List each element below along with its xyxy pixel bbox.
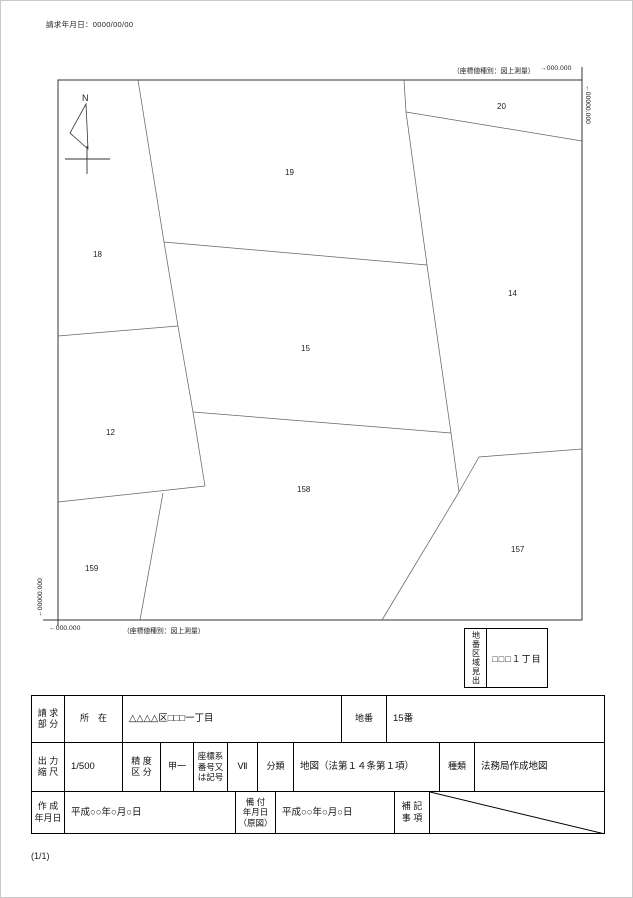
parcel-boundaries: 181920141512158159157: [58, 80, 582, 620]
parcel-boundary-line: [140, 493, 163, 620]
parcel-boundary-line: [459, 449, 582, 492]
lot-number-value: 15番: [386, 696, 604, 742]
classification-label: 分類: [257, 742, 293, 791]
lot-number-label: 地番: [341, 696, 386, 742]
cadastral-map: N 181920141512158159157: [1, 1, 633, 661]
attribute-table: 請 求 部 分 所 在 △△△△区□□□一丁目 地番 15番 出 力 縮 尺 1…: [31, 695, 605, 834]
parcel-number-label: 12: [106, 428, 115, 437]
classification-value: 地図（法第１４条第１項）: [293, 742, 439, 791]
parcel-boundary-line: [58, 326, 178, 336]
parcel-number-label: 18: [93, 250, 102, 259]
precision-class-label: 精 度 区 分: [122, 742, 160, 791]
parcel-boundary-line: [138, 80, 205, 486]
parcel-number-label: 15: [301, 344, 310, 353]
coord-y-right-edge: ←00000.000: [584, 85, 591, 124]
coord-y-left-edge: ←00000.000: [37, 578, 44, 617]
parcel-number-label: 20: [497, 102, 506, 111]
parcel-number-label: 14: [508, 289, 517, 298]
request-part-label: 請 求 部 分: [32, 696, 64, 742]
output-scale-label: 出 力 縮 尺: [32, 742, 64, 791]
north-arrow-icon: [70, 104, 88, 149]
created-date-label: 作 成 年月日: [32, 791, 64, 833]
coord-system-label: 座標系 番号又 は記号: [193, 742, 227, 791]
location-value: △△△△区□□□一丁目: [122, 696, 341, 742]
filed-date-label: 備 付 年月日 （原図）: [235, 791, 275, 833]
kind-value: 法務局作成地図: [474, 742, 604, 791]
coord-x-top-right: →000.000: [540, 65, 571, 72]
filed-date-value: 平成○○年○月○日: [275, 791, 394, 833]
north-label: N: [82, 93, 89, 103]
parcel-number-label: 157: [511, 545, 525, 554]
location-label: 所 在: [64, 696, 122, 742]
remarks-label: 補 記 事 項: [394, 791, 429, 833]
precision-class-value: 甲一: [160, 742, 193, 791]
cadastral-map-certificate-page: 請求年月日：0000/00/00 N 181920141512158159157…: [0, 0, 633, 898]
parcel-boundary-line: [164, 242, 427, 265]
coord-system-value: Ⅶ: [227, 742, 257, 791]
diagonal-strike-line: [430, 792, 604, 834]
parcel-number-label: 159: [85, 564, 99, 573]
parcel-number-label: 158: [297, 485, 311, 494]
remarks-value-empty: [429, 791, 604, 833]
coord-type-note-top: （座標値種別：図上測量）: [453, 65, 535, 75]
coord-x-bottom-left: ←000.000: [49, 625, 80, 632]
parcel-boundary-line: [406, 112, 582, 141]
map-border: [58, 80, 582, 620]
page-indicator: (1/1): [31, 851, 50, 861]
created-date-value: 平成○○年○月○日: [64, 791, 235, 833]
coord-type-note-bottom: （座標値種別：図上測量）: [123, 625, 205, 635]
district-index-box: 地番区域見出 □□□１丁目: [464, 628, 548, 688]
parcel-boundary-line: [382, 492, 459, 620]
district-index-value: □□□１丁目: [487, 629, 547, 687]
district-index-label: 地番区域見出: [465, 629, 487, 687]
parcel-number-label: 19: [285, 168, 294, 177]
parcel-boundary-line: [58, 486, 205, 502]
parcel-boundary-line: [193, 412, 451, 433]
kind-label: 種類: [439, 742, 474, 791]
output-scale-value: 1/500: [64, 742, 122, 791]
